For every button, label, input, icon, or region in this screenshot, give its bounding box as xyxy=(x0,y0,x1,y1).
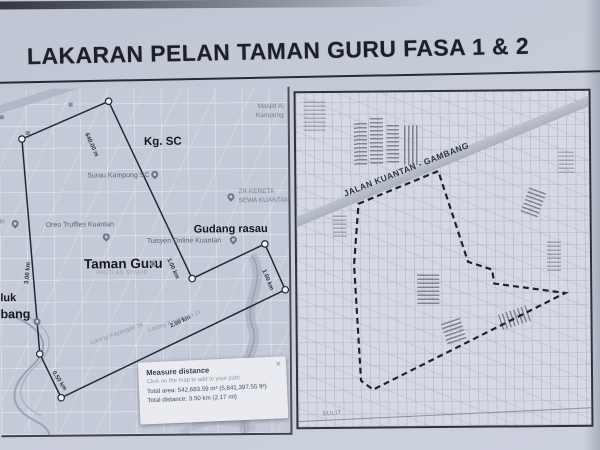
river-outline xyxy=(8,314,49,435)
left-map-panel: 640.00 m 1.00 km 1.60 km 2.00 km 0.50 km… xyxy=(0,87,293,438)
right-map-panel: JALAN KUANTAN - GAMBANG SULIT xyxy=(294,89,594,430)
place-label-masjid-line1: Masjid Al xyxy=(258,103,284,110)
place-label-edge-luk: luk xyxy=(0,292,16,304)
dashed-boundary-polygon xyxy=(296,91,592,428)
place-label-zr-line1: ZR KERETA xyxy=(238,188,274,195)
place-label-gudang-rasau: Gudang rasau xyxy=(194,223,268,236)
circle-pin-icon xyxy=(150,261,156,267)
title-underline xyxy=(0,70,600,84)
place-label-oreo: Oreo Truffles Kuantan xyxy=(46,221,114,229)
place-label-masjid-line2: Kampung xyxy=(256,112,284,119)
place-label-zr-line2: SEWA KUANTAN xyxy=(238,197,289,204)
place-label-kg-sc: Kg. SC xyxy=(144,136,182,148)
place-label-tuisyen: Tuisyen Online Kuantan xyxy=(147,237,222,245)
place-label-edge-fragment: in xyxy=(0,218,5,225)
place-label-edge-bang: bang xyxy=(0,307,30,321)
close-icon[interactable]: × xyxy=(276,358,282,368)
place-label-surau: Surau Kampung SC xyxy=(87,172,149,180)
page-title: LAKARAN PELAN TAMAN GURU FASA 1 & 2 xyxy=(0,32,578,72)
photo-top-shadow xyxy=(0,0,440,10)
place-label-pasti: PASTI AS SYAFIE xyxy=(96,270,148,276)
measure-distance-popup: × Measure distance Click on the map to a… xyxy=(138,356,289,424)
